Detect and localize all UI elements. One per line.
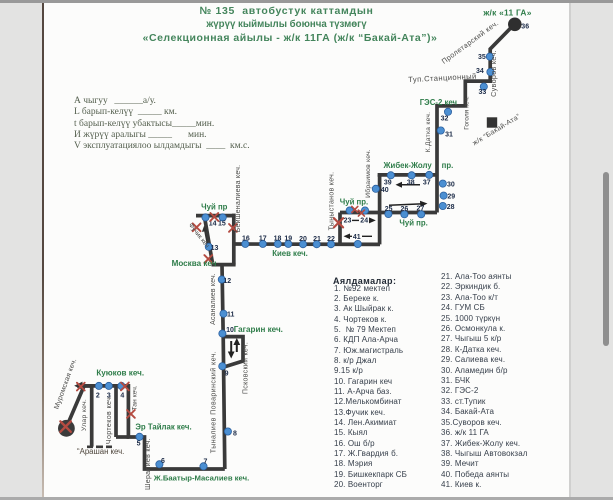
svg-text:34: 34 bbox=[476, 68, 484, 75]
svg-text:Тыналиев Поваринский кеч.: Тыналиев Поваринский кеч. bbox=[210, 351, 218, 453]
svg-text:30: 30 bbox=[447, 181, 455, 188]
svg-text:Псковский кеч.: Псковский кеч. bbox=[241, 342, 249, 394]
svg-text:19: 19 bbox=[284, 235, 292, 242]
svg-text:17: 17 bbox=[259, 235, 267, 242]
svg-text:41: 41 bbox=[353, 234, 361, 241]
svg-text:27: 27 bbox=[417, 206, 425, 213]
svg-text:23: 23 bbox=[344, 218, 352, 225]
svg-text:16: 16 bbox=[242, 235, 250, 242]
svg-text:24: 24 bbox=[360, 218, 368, 225]
svg-text:12: 12 bbox=[223, 278, 231, 285]
svg-text:Чуй пр: Чуй пр bbox=[201, 202, 227, 211]
svg-text:Муромская кеч.: Муромская кеч. bbox=[53, 358, 78, 411]
svg-text:22: 22 bbox=[327, 236, 335, 243]
svg-text:Тан кеч.: Тан кеч. bbox=[131, 385, 138, 410]
svg-text:Бейшеналиева кеч.: Бейшеналиева кеч. bbox=[234, 165, 242, 233]
svg-text:пр.: пр. bbox=[442, 161, 454, 170]
svg-text:33: 33 bbox=[479, 89, 487, 96]
svg-text:31: 31 bbox=[445, 132, 453, 139]
svg-text:9: 9 bbox=[225, 371, 229, 378]
svg-text:37: 37 bbox=[423, 179, 431, 186]
svg-text:Москва кеч: Москва кеч bbox=[172, 259, 217, 268]
svg-text:2: 2 bbox=[96, 393, 100, 400]
svg-text:Чортеков кеч: Чортеков кеч bbox=[106, 397, 113, 444]
svg-text:Гагарин кеч.: Гагарин кеч. bbox=[234, 325, 283, 334]
svg-text:18: 18 bbox=[274, 235, 282, 242]
svg-text:25: 25 bbox=[385, 206, 393, 213]
svg-text:ж/к «11 ГА»: ж/к «11 ГА» bbox=[482, 8, 531, 18]
svg-text:40: 40 bbox=[381, 187, 389, 194]
svg-text:Асаналиев кеч.: Асаналиев кеч. bbox=[210, 273, 217, 325]
svg-text:Тыныстанов кеч.: Тыныстанов кеч. bbox=[329, 172, 336, 231]
svg-text:Суворов кеч.: Суворов кеч. bbox=[489, 50, 498, 97]
svg-text:5: 5 bbox=[137, 440, 141, 447]
svg-text:Улар кеч.: Улар кеч. bbox=[81, 399, 88, 431]
svg-text:20: 20 bbox=[299, 236, 307, 243]
svg-text:29: 29 bbox=[447, 193, 455, 200]
svg-text:13: 13 bbox=[211, 245, 219, 252]
svg-text:Куюков кеч.: Куюков кеч. bbox=[96, 369, 144, 378]
svg-text:26: 26 bbox=[401, 206, 409, 213]
svg-text:Чуй пр.: Чуй пр. bbox=[399, 218, 427, 227]
svg-text:7: 7 bbox=[204, 459, 208, 466]
svg-text:К.Датка кеч.: К.Датка кеч. bbox=[425, 112, 432, 152]
svg-text:4: 4 bbox=[120, 393, 124, 400]
svg-text:39: 39 bbox=[384, 179, 392, 186]
svg-text:ГЭС-2 кеч: ГЭС-2 кеч bbox=[420, 98, 457, 107]
svg-text:35: 35 bbox=[478, 54, 486, 61]
svg-text:11: 11 bbox=[227, 312, 235, 319]
svg-text:14: 14 bbox=[209, 221, 217, 228]
svg-text:Киев кеч.: Киев кеч. bbox=[272, 249, 308, 258]
svg-text:Шералиев кеч.: Шералиев кеч. bbox=[145, 438, 152, 490]
svg-text:Ибраимов кеч.: Ибраимов кеч. bbox=[364, 149, 372, 198]
svg-text:6: 6 bbox=[161, 458, 165, 465]
svg-text:28: 28 bbox=[447, 204, 455, 211]
svg-text:Эр Тайлак кеч.: Эр Тайлак кеч. bbox=[135, 423, 191, 432]
svg-text:Ж.Баатыр-Масалиев кеч.: Ж.Баатыр-Масалиев кеч. bbox=[153, 474, 249, 483]
svg-text:8: 8 bbox=[233, 430, 237, 437]
svg-text:38: 38 bbox=[407, 180, 415, 187]
svg-text:“Арашан кеч.: “Арашан кеч. bbox=[77, 447, 124, 456]
svg-text:Гоголя кеч.: Гоголя кеч. bbox=[463, 96, 470, 130]
svg-text:32: 32 bbox=[441, 115, 449, 122]
svg-text:21: 21 bbox=[313, 236, 321, 243]
svg-text:36: 36 bbox=[521, 24, 529, 31]
svg-text:15: 15 bbox=[218, 221, 226, 228]
svg-text:Жибек-Жолу: Жибек-Жолу bbox=[382, 161, 432, 170]
